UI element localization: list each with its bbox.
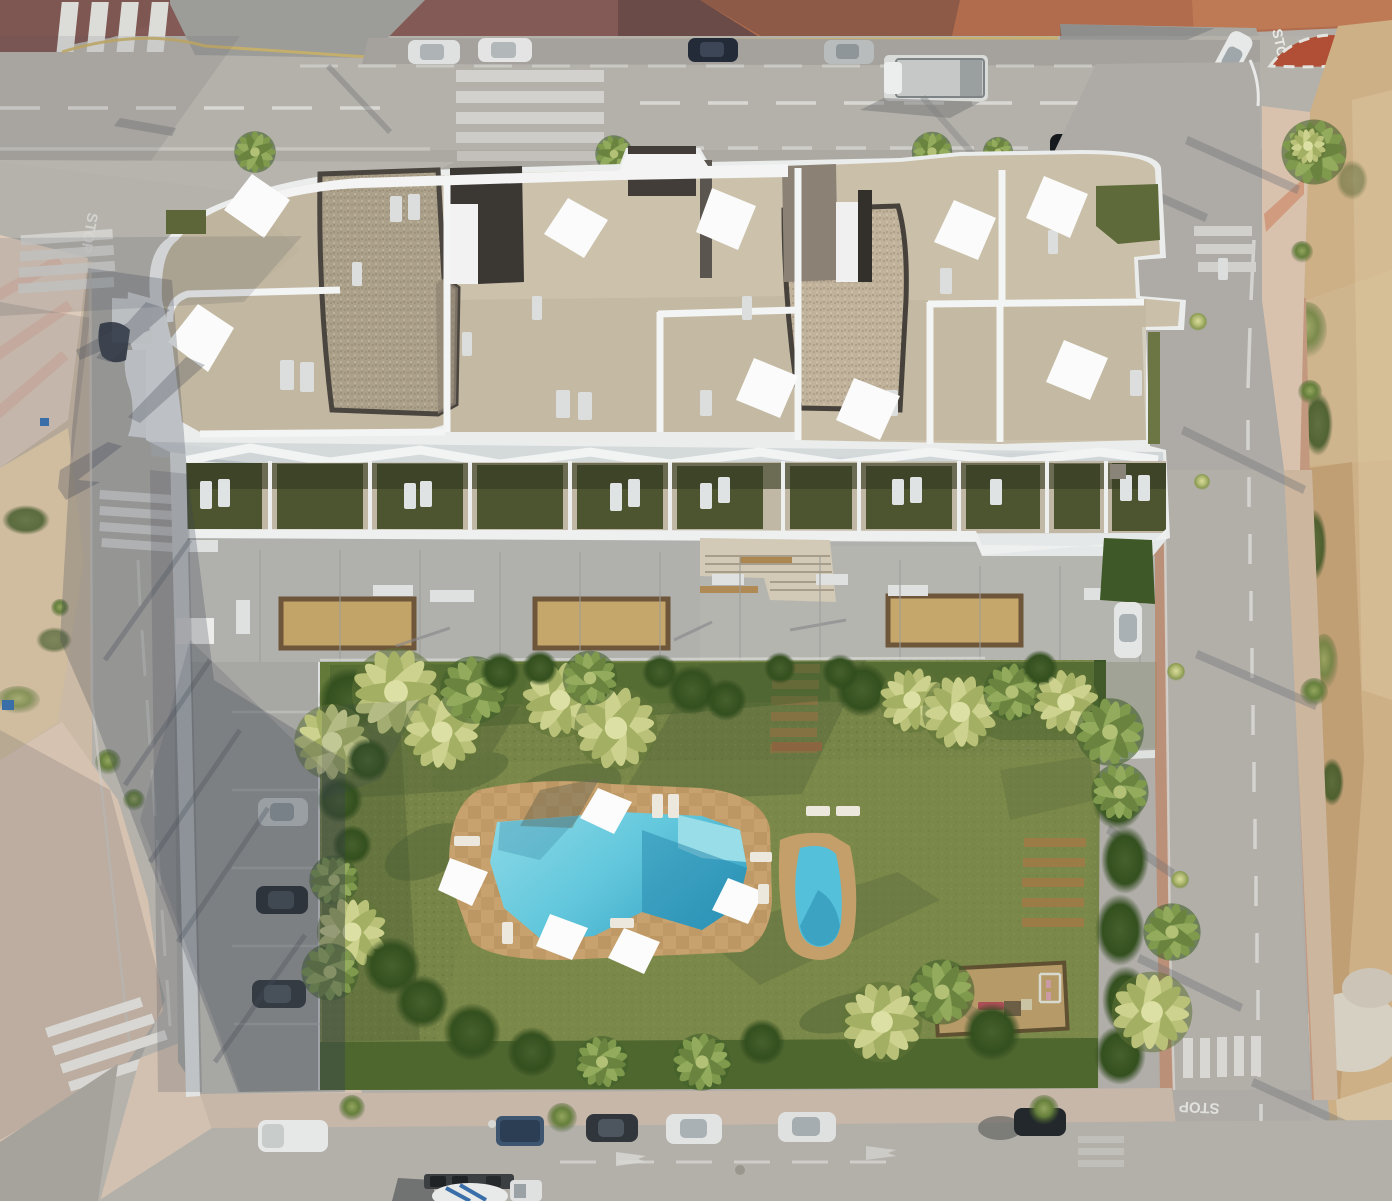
svg-text:STOP: STOP — [1178, 1098, 1219, 1117]
